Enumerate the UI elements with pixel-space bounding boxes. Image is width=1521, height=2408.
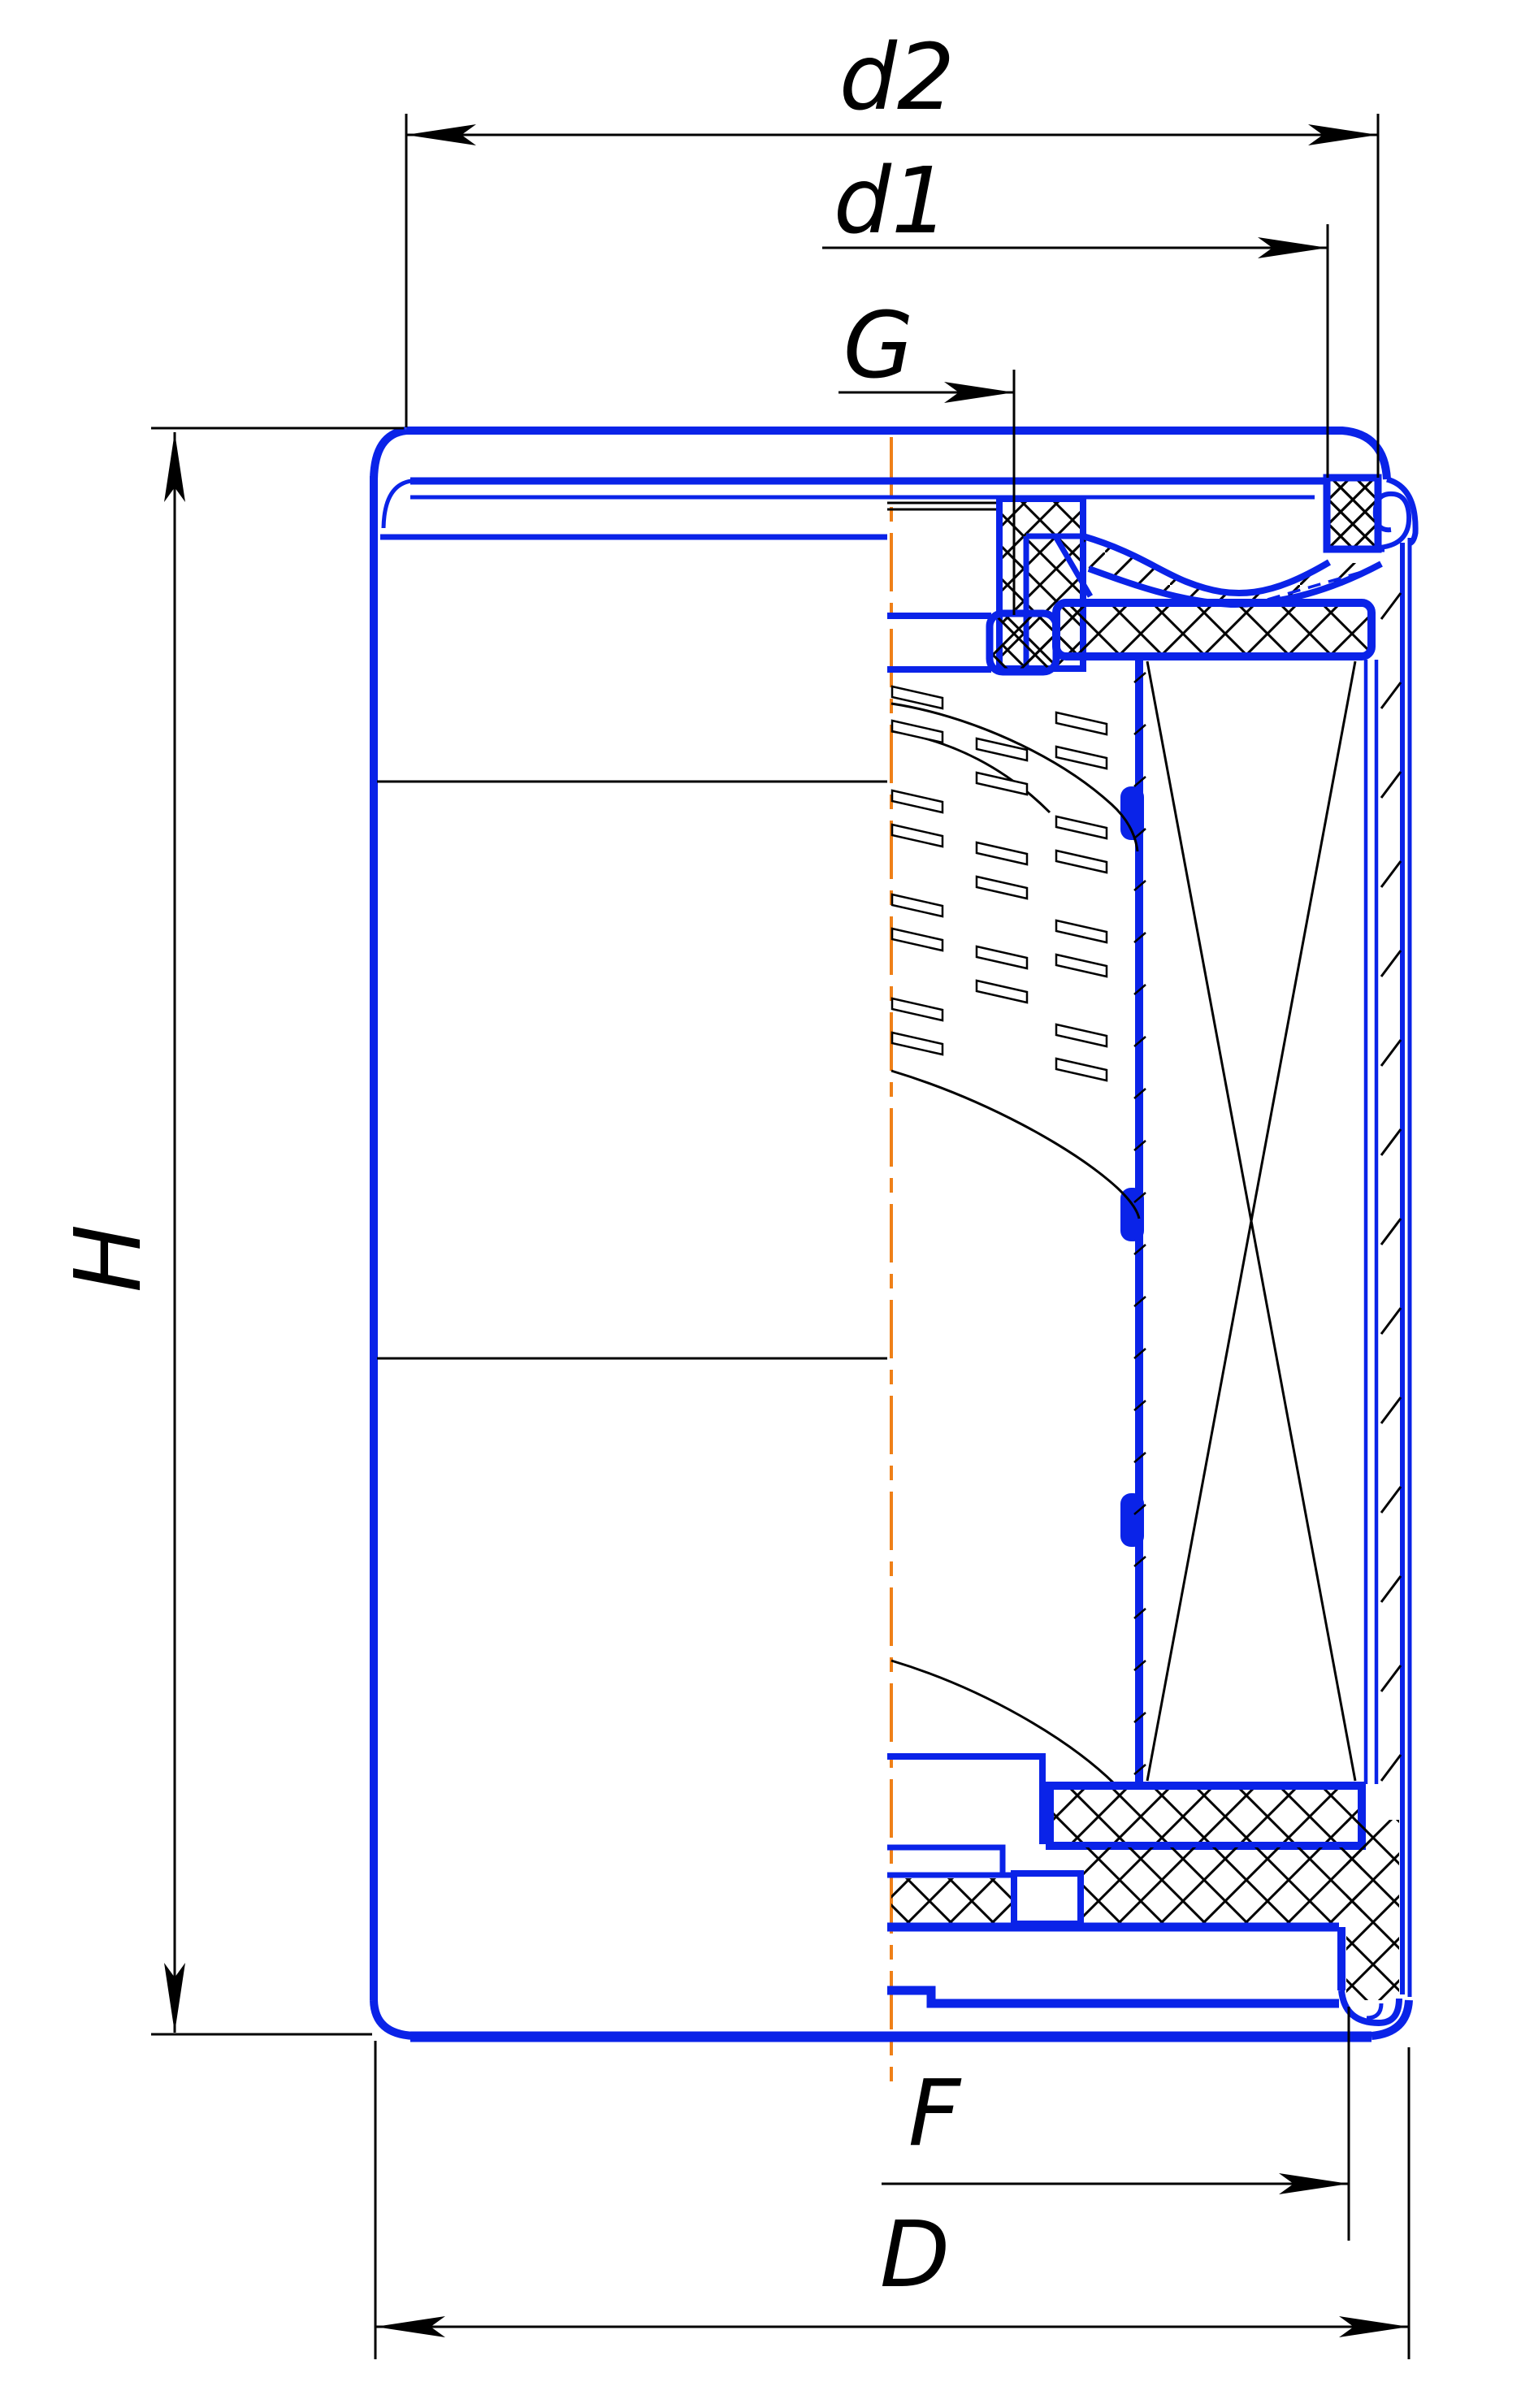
top-end-cap: [1056, 603, 1371, 656]
dim-label-d1: d1: [834, 149, 949, 254]
filter-section-drawing: d2 d1 G H F: [0, 0, 1521, 2408]
tube-dimple-3: [1120, 1493, 1144, 1547]
dim-label-G: G: [843, 293, 914, 399]
dim-label-d2: d2: [839, 25, 955, 131]
bypass-window: [1014, 1873, 1081, 1924]
dim-label-H: H: [56, 1224, 162, 1293]
bottom-end-cap: [1050, 1786, 1362, 1846]
bottom-gasket-column: [1346, 1820, 1399, 2000]
sealing-gasket: [1327, 478, 1384, 549]
drawing-page: d2 d1 G H F: [0, 0, 1521, 2408]
dim-label-F: F: [908, 2061, 962, 2167]
background: [0, 0, 1521, 2408]
bottom-seal-left: [891, 1878, 1014, 1924]
bottom-seal-right: [1081, 1847, 1362, 1924]
inner-seal-ring: [990, 613, 1056, 672]
dim-label-D: D: [880, 2202, 950, 2308]
